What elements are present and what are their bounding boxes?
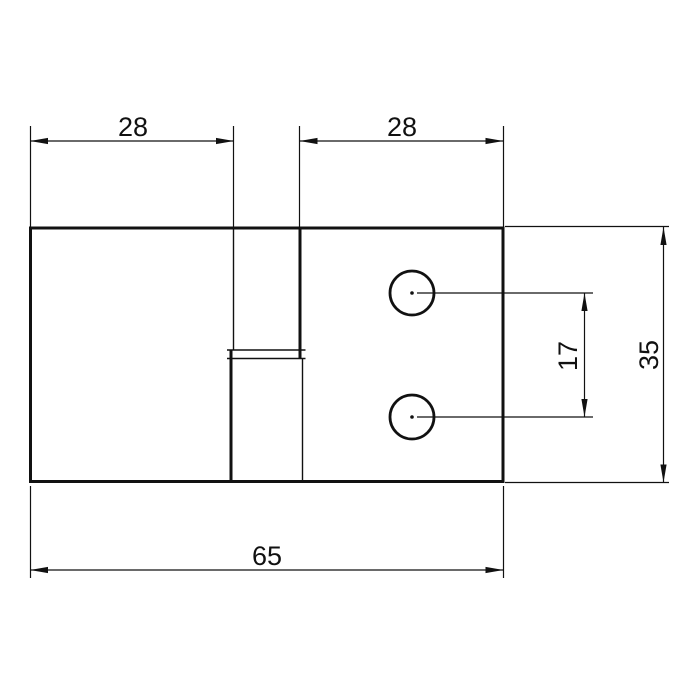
arrowhead-down-icon	[660, 465, 666, 483]
dimension-top-right-width: 28	[300, 112, 504, 227]
dimension-hole-spacing: 17	[417, 293, 593, 417]
arrowhead-left-icon	[30, 138, 48, 144]
hole-top-center-mark	[410, 291, 414, 295]
arrowhead-left-icon	[300, 138, 318, 144]
arrowhead-left-icon	[30, 567, 48, 573]
dimension-value: 17	[553, 341, 583, 371]
dimension-value: 65	[252, 541, 282, 571]
technical-drawing: 28 28 65 17 35	[0, 0, 700, 700]
dimension-top-left-width: 28	[30, 112, 234, 227]
dimension-value: 35	[634, 340, 664, 370]
dimension-value: 28	[387, 112, 417, 142]
arrowhead-right-icon	[216, 138, 234, 144]
arrowhead-up-icon	[660, 227, 666, 245]
dimension-value: 28	[118, 112, 148, 142]
arrowhead-right-icon	[486, 138, 504, 144]
drawing-svg: 28 28 65 17 35	[0, 0, 700, 700]
part-view	[31, 228, 504, 482]
arrowhead-right-icon	[486, 567, 504, 573]
arrowhead-down-icon	[581, 399, 587, 417]
arrowhead-up-icon	[581, 293, 587, 311]
hole-bottom-center-mark	[410, 415, 414, 419]
part-outline	[31, 228, 504, 482]
dimension-overall-height: 35	[505, 227, 669, 483]
dimension-total-width: 65	[30, 486, 504, 578]
